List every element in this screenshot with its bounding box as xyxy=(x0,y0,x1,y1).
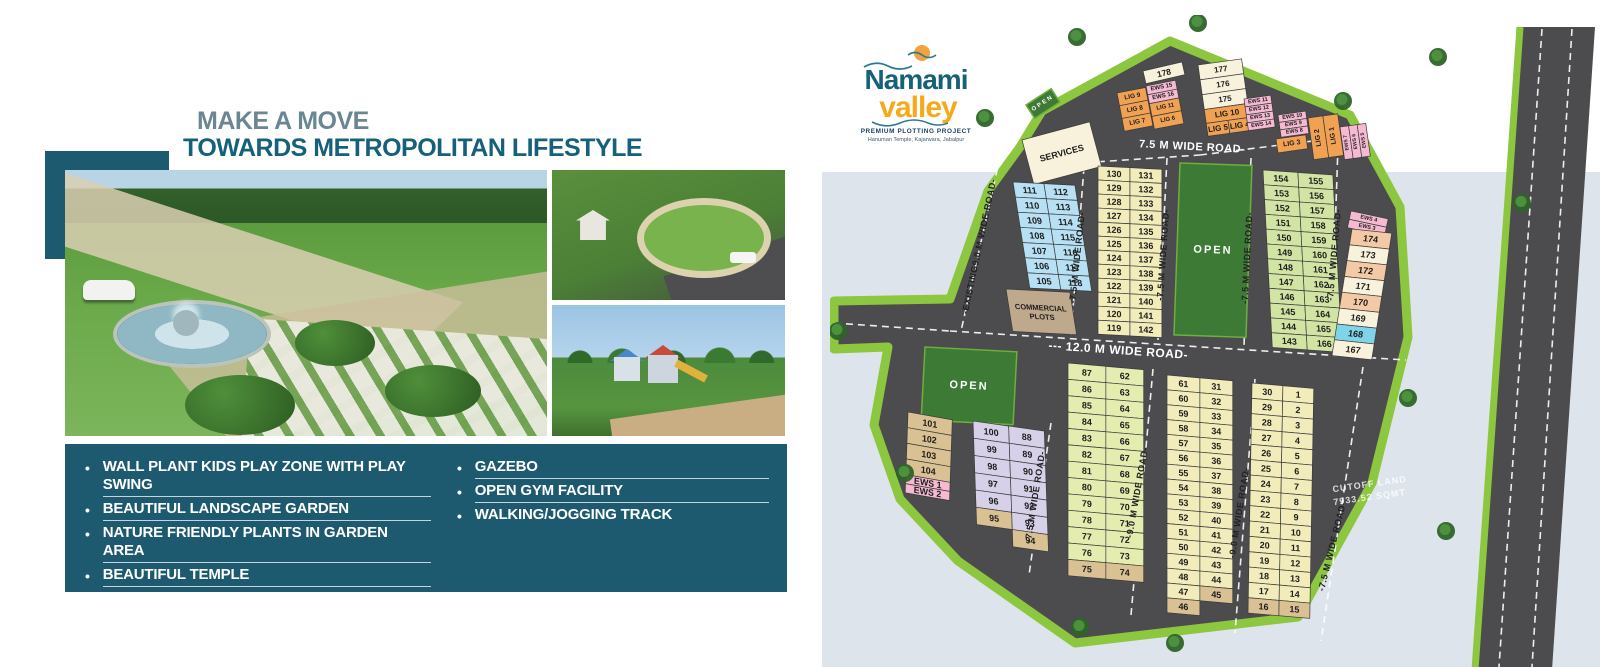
plot-label: 22 xyxy=(1260,509,1270,520)
feature-label: OPEN GYM FACILITY xyxy=(475,482,769,503)
feature-item: BEAUTIFUL TEMPLE xyxy=(79,566,431,587)
feature-label: WALL PLANT KIDS PLAY ZONE WITH PLAY SWIN… xyxy=(103,458,431,497)
tree-icon xyxy=(1334,92,1352,110)
plot-label: 15 xyxy=(1289,604,1299,615)
plot-label: 125 xyxy=(1106,239,1121,250)
plot-label: 28 xyxy=(1262,417,1272,428)
plot-label: 36 xyxy=(1211,456,1221,467)
playset xyxy=(648,355,678,383)
plot-label: 167 xyxy=(1345,344,1362,355)
plot-label: 170 xyxy=(1352,297,1369,308)
plot-block-lig-1-2: LIG 2LIG 1 xyxy=(1308,114,1344,160)
plot-label: 12 xyxy=(1290,558,1300,569)
feature-item: WALL PLANT KIDS PLAY ZONE WITH PLAY SWIN… xyxy=(79,458,431,497)
plot-block-col-31-61: 6131603259335834573556365537543853395240… xyxy=(1167,375,1233,618)
plot-label: 43 xyxy=(1211,560,1221,571)
plot-label: 164 xyxy=(1315,309,1330,320)
plot-label: 23 xyxy=(1260,494,1270,505)
plot-label: 173 xyxy=(1360,249,1377,260)
plot-label: 158 xyxy=(1310,220,1325,231)
plot-label: 62 xyxy=(1120,371,1130,382)
plot-label: 168 xyxy=(1347,328,1364,339)
plot-label: 106 xyxy=(1033,261,1050,272)
plot-label: 63 xyxy=(1120,387,1130,398)
plot-label: 42 xyxy=(1211,545,1221,556)
plot-label: 47 xyxy=(1178,586,1188,597)
plot-label: 126 xyxy=(1106,225,1121,236)
plot-label: 146 xyxy=(1279,291,1294,302)
plot-label: 86 xyxy=(1082,384,1092,395)
plot-label: 129 xyxy=(1106,182,1121,193)
open-area: OPEN xyxy=(921,347,1017,425)
plot-label: 143 xyxy=(1282,336,1297,347)
plot-label: 152 xyxy=(1275,203,1290,214)
plot-label: 171 xyxy=(1355,281,1372,292)
plot-label: 84 xyxy=(1082,416,1092,427)
plot-label: 149 xyxy=(1277,247,1292,258)
plot-label: 80 xyxy=(1082,482,1092,493)
plot-label: 32 xyxy=(1211,396,1221,407)
plot-label: 136 xyxy=(1138,240,1153,251)
site-layout-map: OPENOPENOPENSERVICESLIG 9LIG 8LIG 7EWS 1… xyxy=(830,15,1600,667)
plot-label: 122 xyxy=(1106,281,1121,292)
plot-label: 78 xyxy=(1082,515,1092,526)
plot-label: 29 xyxy=(1262,402,1272,413)
plot-label: 68 xyxy=(1120,469,1130,480)
headline-line2: TOWARDS METROPOLITAN LIFESTYLE xyxy=(183,135,642,162)
plot-label: 13 xyxy=(1290,573,1300,584)
plot-label: 88 xyxy=(1022,431,1032,442)
plot-label: 20 xyxy=(1260,540,1270,551)
plot-label: 131 xyxy=(1138,170,1153,181)
plot-label: 61 xyxy=(1178,378,1188,389)
plot-label: 30 xyxy=(1262,387,1272,398)
plot-label: 140 xyxy=(1138,296,1153,307)
plot-label: 166 xyxy=(1317,338,1332,349)
plot-label: 119 xyxy=(1107,323,1122,334)
garden-render-image xyxy=(65,170,547,436)
plot-label: 113 xyxy=(1055,202,1071,213)
plot-label: 75 xyxy=(1082,564,1092,575)
plot-label: 176 xyxy=(1216,79,1231,90)
plot-label: 48 xyxy=(1178,572,1188,583)
plot-label: 174 xyxy=(1362,233,1379,244)
plot-label: 69 xyxy=(1120,485,1130,496)
plot-label: 19 xyxy=(1259,555,1269,566)
bush xyxy=(385,365,481,417)
plot-label: 141 xyxy=(1138,310,1153,321)
plot-label: 3 xyxy=(1295,420,1300,430)
plot-label: 134 xyxy=(1138,212,1153,223)
plot-label: 57 xyxy=(1178,438,1188,449)
plot-label: 40 xyxy=(1211,515,1221,526)
plot-label: 26 xyxy=(1261,448,1271,459)
plot-label: 83 xyxy=(1082,433,1092,444)
feature-label: BEAUTIFUL LANDSCAPE GARDEN xyxy=(103,500,431,521)
plot-label: 159 xyxy=(1311,235,1326,246)
plot-label: 96 xyxy=(988,495,998,506)
plot-label: 17 xyxy=(1259,586,1269,597)
plot-label: 133 xyxy=(1138,198,1153,209)
plot-label: 110 xyxy=(1024,200,1040,211)
plot-block-ews-11-14: EWS 11EWS 12EWS 13EWS 14 xyxy=(1244,95,1275,130)
open-label: OPEN xyxy=(949,379,989,393)
plot-label: 81 xyxy=(1082,466,1092,477)
feature-item: WALKING/JOGGING TRACK xyxy=(451,506,769,526)
feature-item: NATURE FRIENDLY PLANTS IN GARDEN AREA xyxy=(79,524,431,563)
plot-label: 45 xyxy=(1211,589,1221,600)
plot-label: 14 xyxy=(1290,589,1300,600)
plot-label: 145 xyxy=(1280,306,1295,317)
plot-label: 74 xyxy=(1120,567,1130,578)
car xyxy=(83,280,135,300)
plot-label: 87 xyxy=(1082,367,1092,378)
plot-block-col-101-104: 101102103104EWS 1EWS 2 xyxy=(905,412,952,501)
tree-icon xyxy=(1189,15,1207,32)
plot-label: 53 xyxy=(1178,497,1188,508)
circular-lawn xyxy=(637,198,771,278)
plot-label: 157 xyxy=(1310,205,1325,216)
plot-label: 105 xyxy=(1036,276,1053,287)
plot-label: 142 xyxy=(1138,324,1153,335)
plot-label: 120 xyxy=(1106,309,1121,320)
tree-icon xyxy=(1399,389,1417,407)
plot-label: 73 xyxy=(1120,551,1130,562)
plot-label: 109 xyxy=(1026,215,1043,226)
plot-label: 172 xyxy=(1357,265,1374,276)
plot-label: 52 xyxy=(1178,512,1188,523)
car xyxy=(730,252,756,263)
feature-item: OPEN GYM FACILITY xyxy=(451,482,769,503)
plot-label: 58 xyxy=(1178,423,1188,434)
plot-label: 21 xyxy=(1260,525,1270,536)
plot-label: 10 xyxy=(1291,527,1301,538)
plot-label: 112 xyxy=(1053,187,1069,198)
feature-item: BEAUTIFUL LANDSCAPE GARDEN xyxy=(79,500,431,521)
plot-label: 100 xyxy=(984,426,999,438)
plot-label: 24 xyxy=(1261,479,1271,490)
plot-label: 11 xyxy=(1291,543,1301,554)
headline-line1: MAKE A MOVE xyxy=(197,108,642,135)
tree-icon xyxy=(1437,522,1455,540)
tree-icon xyxy=(976,109,994,127)
fountain-center xyxy=(173,310,199,336)
plot-label: 139 xyxy=(1138,282,1153,293)
road xyxy=(610,383,785,436)
plot-label: 18 xyxy=(1259,571,1269,582)
bush xyxy=(295,320,375,366)
plot-label: 25 xyxy=(1261,463,1271,474)
plot-label: 111 xyxy=(1022,185,1038,196)
features-list-left: WALL PLANT KIDS PLAY ZONE WITH PLAY SWIN… xyxy=(79,458,431,613)
plot-label: 150 xyxy=(1276,232,1291,243)
feature-label: BEAUTIFUL TEMPLE xyxy=(103,566,431,587)
plot-label: 34 xyxy=(1211,426,1221,437)
plot-label: 148 xyxy=(1278,262,1293,273)
plot-label: 2 xyxy=(1295,405,1300,415)
plot-label: 31 xyxy=(1211,381,1221,392)
plot-block-col-62-87: 8762866385648465836682678168806979707871… xyxy=(1068,363,1144,582)
plot-label: 51 xyxy=(1178,527,1188,538)
plot-label: 77 xyxy=(1082,531,1092,542)
plot-label: 153 xyxy=(1274,188,1289,199)
plot-block-ews-8-10: EWS 10EWS 9EWS 8 xyxy=(1278,111,1309,137)
plot-label: 97 xyxy=(988,478,998,489)
feature-label: GAZEBO xyxy=(475,458,769,479)
feature-label: NATURE FRIENDLY PLANTS IN GARDEN AREA xyxy=(103,524,431,563)
plot-label: 138 xyxy=(1138,268,1153,279)
playset xyxy=(614,357,640,381)
plot-label: 144 xyxy=(1281,321,1296,332)
plot-label: 59 xyxy=(1178,408,1188,419)
plot-label: 128 xyxy=(1106,196,1121,207)
bush xyxy=(185,375,295,435)
tree-icon xyxy=(1068,28,1086,46)
plot-label: 127 xyxy=(1106,211,1121,222)
plot-label: 155 xyxy=(1308,176,1323,187)
plot-label: 154 xyxy=(1273,173,1288,184)
plot-block-block-175-177: 177176175LIG 10LIG 5LIG 4 xyxy=(1198,59,1252,136)
plot-label: 135 xyxy=(1138,226,1153,237)
plot-label: 147 xyxy=(1279,277,1294,288)
plot-label: 90 xyxy=(1023,466,1033,477)
open-area: OPEN xyxy=(1174,163,1252,337)
plot-label: 108 xyxy=(1029,230,1046,241)
plot-label: 54 xyxy=(1178,482,1188,493)
plot-label: 7 xyxy=(1294,482,1299,492)
plot-label: 50 xyxy=(1178,542,1188,553)
plot-label: 35 xyxy=(1211,441,1221,452)
plot-label: 64 xyxy=(1120,403,1130,414)
tree-icon xyxy=(896,464,914,482)
plot-label: 39 xyxy=(1211,500,1221,511)
aerial-garden-image xyxy=(552,170,785,300)
plot-label: 85 xyxy=(1082,400,1092,411)
gazebo xyxy=(576,210,610,240)
plot-label: 177 xyxy=(1214,64,1229,75)
plot-label: 66 xyxy=(1120,436,1130,447)
plot-label: 1 xyxy=(1296,389,1301,399)
playground-image xyxy=(552,305,785,436)
plot-label: 49 xyxy=(1178,557,1188,568)
plot-label: 107 xyxy=(1031,246,1048,257)
plot-label: 151 xyxy=(1275,217,1290,228)
plot-label: 38 xyxy=(1211,485,1221,496)
tree-icon xyxy=(1513,194,1531,212)
plot-block-ews-5-7: EWS 7EWS 6EWS 5 xyxy=(1340,123,1370,159)
plot-label: 67 xyxy=(1120,453,1130,464)
plot-label: 33 xyxy=(1211,411,1221,422)
open-label: OPEN xyxy=(1193,244,1233,257)
plot-label: 130 xyxy=(1106,168,1121,179)
plot-label: 56 xyxy=(1178,453,1188,464)
plot-block-col-1-30: 3012922832742652562472382292110201119121… xyxy=(1248,383,1314,618)
page-title: MAKE A MOVE TOWARDS METROPOLITAN LIFESTY… xyxy=(183,108,642,161)
features-panel: WALL PLANT KIDS PLAY ZONE WITH PLAY SWIN… xyxy=(65,444,787,592)
plot-label: 76 xyxy=(1082,547,1092,558)
plot-label: 44 xyxy=(1211,574,1221,585)
tree-icon xyxy=(1429,48,1447,66)
plot-label: 6 xyxy=(1294,466,1299,476)
plot-label: 132 xyxy=(1138,184,1153,195)
plot-label: 9 xyxy=(1293,512,1298,522)
plot-label: 137 xyxy=(1138,254,1153,265)
plot-block-commercial-plots: COMMERCIALPLOTS xyxy=(1006,289,1077,335)
plot-label: 121 xyxy=(1106,295,1121,306)
features-list-right: GAZEBOOPEN GYM FACILITYWALKING/JOGGING T… xyxy=(451,458,769,529)
plot-label: 27 xyxy=(1261,433,1271,444)
tree-icon xyxy=(1071,618,1089,636)
plot-label: 99 xyxy=(987,444,997,455)
feature-item: WATER BODY IN GARDEN AREA xyxy=(79,590,431,610)
plot-block-col-119-142: 1301311291321281331271341261351251361241… xyxy=(1098,166,1162,338)
plot-label: 95 xyxy=(989,513,999,524)
plot-label: 124 xyxy=(1106,253,1121,264)
plot-label: 123 xyxy=(1106,267,1121,278)
plot-label: 37 xyxy=(1211,470,1221,481)
highway-road xyxy=(1475,27,1595,667)
feature-label: WATER BODY IN GARDEN AREA xyxy=(103,590,431,610)
plot-label: 160 xyxy=(1312,249,1327,260)
plot-label: 89 xyxy=(1022,449,1032,460)
plot-label: 5 xyxy=(1295,451,1300,461)
plot-label: 82 xyxy=(1082,449,1092,460)
plot-label: 156 xyxy=(1309,190,1324,201)
plot-label: 79 xyxy=(1082,498,1092,509)
plot-label: 98 xyxy=(987,461,997,472)
plot-label: 161 xyxy=(1313,264,1328,275)
plot-label: 165 xyxy=(1316,323,1331,334)
feature-item: GAZEBO xyxy=(451,458,769,479)
plot-label: 114 xyxy=(1057,217,1074,228)
plot-label: 60 xyxy=(1178,393,1188,404)
brochure-page: MAKE A MOVE TOWARDS METROPOLITAN LIFESTY… xyxy=(0,0,1600,667)
plot-label: 8 xyxy=(1294,497,1299,507)
plot-label: 16 xyxy=(1258,601,1268,612)
plot-label: 175 xyxy=(1218,94,1233,105)
plot-label: 46 xyxy=(1178,601,1188,612)
plot-label: 41 xyxy=(1211,530,1221,541)
plot-label: 55 xyxy=(1178,468,1188,479)
plot-label: 65 xyxy=(1120,420,1130,431)
plot-label: 4 xyxy=(1295,436,1300,446)
tree-icon xyxy=(1166,634,1184,652)
plot-label: 169 xyxy=(1350,312,1367,323)
feature-label: WALKING/JOGGING TRACK xyxy=(475,506,769,526)
